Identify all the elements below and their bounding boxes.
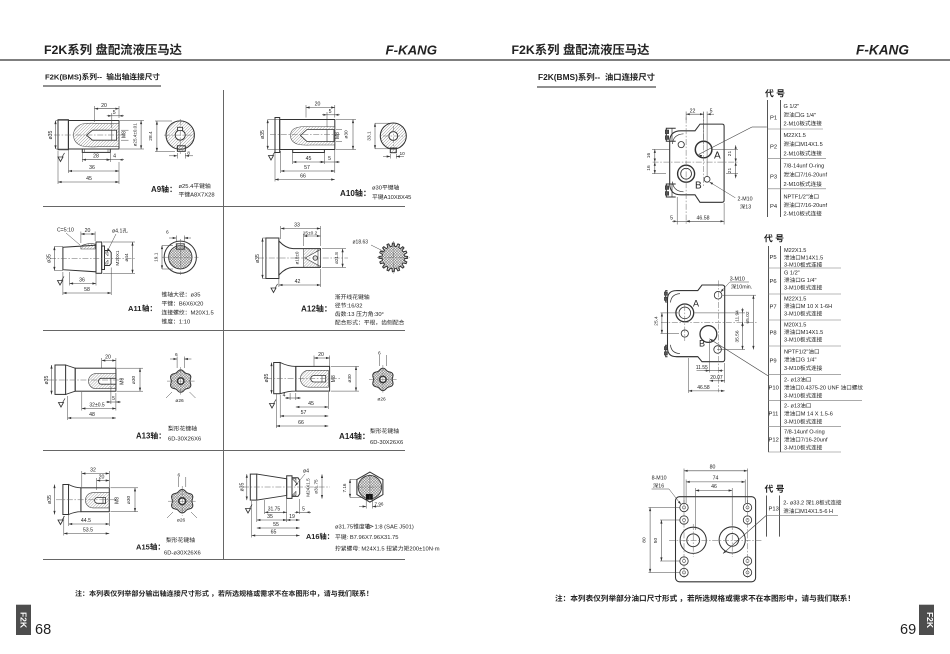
svg-text:F2K: F2K — [512, 43, 535, 57]
svg-text:10min.: 10min. — [736, 285, 752, 291]
svg-text:A16: A16 — [306, 532, 319, 541]
svg-text:65.02: 65.02 — [745, 311, 751, 323]
svg-text:3-M10: 3-M10 — [730, 277, 745, 283]
svg-text:3-M10: 3-M10 — [784, 394, 800, 400]
svg-text:32±0.5: 32±0.5 — [89, 403, 104, 409]
svg-text:M 14 X 1.5-6: M 14 X 1.5-6 — [801, 412, 833, 418]
svg-text:6: 6 — [378, 351, 381, 357]
svg-text:2- ø13: 2- ø13 — [784, 404, 800, 410]
svg-text:B: B — [695, 181, 702, 192]
svg-text:80: 80 — [710, 465, 716, 471]
svg-text:M24X1.5: M24X1.5 — [306, 478, 311, 497]
svg-text:2- ø33.2: 2- ø33.2 — [783, 501, 804, 507]
svg-text:15±0.2: 15±0.2 — [303, 230, 318, 236]
svg-text:19.1: 19.1 — [154, 252, 160, 262]
svg-text:ø30: ø30 — [344, 130, 350, 139]
svg-text:A9: A9 — [151, 185, 162, 194]
svg-text:ø35: ø35 — [191, 293, 201, 299]
svg-text:25.4: 25.4 — [653, 316, 659, 326]
svg-text:ø35: ø35 — [264, 373, 270, 382]
svg-text:G 1/2": G 1/2" — [784, 271, 800, 277]
svg-text:2-M10: 2-M10 — [784, 121, 800, 127]
svg-text:NPTF1/2": NPTF1/2" — [784, 195, 808, 201]
svg-text:M22X1.5: M22X1.5 — [784, 297, 806, 303]
svg-text:M14X1.5-6 H: M14X1.5-6 H — [800, 509, 833, 515]
svg-text:M14X1.5: M14X1.5 — [800, 142, 822, 148]
svg-text:28.4: 28.4 — [148, 131, 154, 141]
svg-text:3-M10: 3-M10 — [784, 312, 800, 318]
svg-text:M20X1: M20X1 — [115, 250, 121, 266]
svg-text:P8: P8 — [770, 331, 777, 337]
svg-text:28: 28 — [93, 154, 99, 160]
svg-text:16: 16 — [658, 484, 664, 490]
svg-text:2-M10: 2-M10 — [784, 212, 800, 218]
svg-text:33: 33 — [294, 223, 300, 229]
svg-text:66: 66 — [300, 174, 306, 180]
svg-text:5: 5 — [329, 109, 332, 115]
svg-text:7/8-14unf O-ring: 7/8-14unf O-ring — [784, 164, 825, 170]
svg-text:3-M10: 3-M10 — [784, 338, 800, 344]
svg-text:ø30: ø30 — [372, 186, 382, 192]
svg-text:M8: M8 — [120, 378, 126, 385]
svg-text:ø26: ø26 — [177, 518, 186, 524]
svg-text:45: 45 — [308, 401, 314, 407]
svg-text:ø18±0: ø18±0 — [295, 251, 300, 264]
svg-text:36: 36 — [79, 278, 85, 284]
svg-text:46: 46 — [711, 484, 717, 490]
svg-text:M8: M8 — [331, 375, 337, 382]
svg-text:P13: P13 — [769, 507, 779, 513]
svg-text:7/8-14unf O-ring: 7/8-14unf O-ring — [784, 430, 825, 436]
svg-text:A14: A14 — [339, 432, 354, 441]
svg-text:ø35: ø35 — [44, 375, 50, 384]
svg-text:ø31.75: ø31.75 — [313, 479, 318, 494]
svg-text:P4: P4 — [770, 204, 778, 210]
svg-text:ø30: ø30 — [347, 374, 353, 383]
svg-text:3-M10: 3-M10 — [784, 263, 800, 269]
svg-text:F2K(BMS): F2K(BMS) — [45, 73, 82, 82]
svg-text:21: 21 — [727, 151, 733, 157]
svg-text:2-M10: 2-M10 — [738, 197, 753, 203]
svg-text:55: 55 — [273, 522, 279, 528]
svg-text:F-KANG: F-KANG — [856, 43, 909, 58]
svg-text:45: 45 — [86, 176, 92, 182]
svg-text:74: 74 — [713, 476, 719, 482]
svg-text:A10X8X45: A10X8X45 — [384, 195, 412, 201]
svg-text:G 1/4": G 1/4" — [800, 113, 816, 119]
svg-text:ø4.1: ø4.1 — [112, 229, 122, 235]
svg-text:53.5: 53.5 — [83, 528, 93, 534]
svg-text:F2K(BMS): F2K(BMS) — [538, 72, 578, 82]
svg-text:16: 16 — [646, 153, 652, 159]
svg-text:ø30: ø30 — [126, 496, 132, 505]
svg-text:--: -- — [595, 72, 601, 82]
svg-text:ø35: ø35 — [48, 130, 54, 139]
svg-text:8: 8 — [187, 151, 190, 157]
svg-text:ø25.4±0.01: ø25.4±0.01 — [132, 123, 137, 147]
svg-text:A10: A10 — [340, 189, 355, 198]
svg-text:57: 57 — [304, 165, 310, 171]
svg-text:19: 19 — [289, 514, 295, 520]
svg-text::16/32: :16/32 — [346, 304, 362, 310]
svg-text:ø30: ø30 — [131, 376, 137, 385]
svg-text:31.75: 31.75 — [268, 506, 281, 512]
svg-text:F2K: F2K — [44, 43, 67, 57]
svg-text:35.56: 35.56 — [734, 330, 740, 342]
svg-text:M8: M8 — [335, 132, 341, 139]
svg-text:ø35: ø35 — [47, 495, 53, 504]
svg-text:7/16-20unf: 7/16-20unf — [800, 173, 827, 179]
svg-text:57: 57 — [301, 410, 307, 416]
svg-text:G 1/4": G 1/4" — [801, 278, 817, 284]
svg-text:200±10N·m: 200±10N·m — [409, 547, 439, 553]
svg-text:P2: P2 — [770, 145, 777, 151]
svg-text:ø44: ø44 — [124, 253, 130, 262]
svg-text:45: 45 — [306, 156, 312, 162]
svg-text:6D-30X26X6: 6D-30X26X6 — [370, 440, 403, 446]
svg-text:M22X1.5: M22X1.5 — [784, 248, 806, 254]
svg-text:22: 22 — [690, 109, 696, 115]
svg-text:6D-ø30X26X6: 6D-ø30X26X6 — [164, 551, 201, 557]
svg-text:P5: P5 — [770, 255, 777, 261]
svg-text:5: 5 — [302, 506, 305, 512]
svg-text:ø25.4: ø25.4 — [179, 184, 195, 190]
svg-text:2-M10: 2-M10 — [784, 151, 800, 157]
svg-text:ø4: ø4 — [303, 469, 309, 475]
svg-text:M22X1.5: M22X1.5 — [784, 133, 806, 139]
svg-text:35: 35 — [267, 514, 273, 520]
svg-text:33.1: 33.1 — [367, 131, 373, 141]
svg-text:P11: P11 — [769, 412, 779, 418]
svg-text:5: 5 — [112, 396, 115, 402]
svg-text:58: 58 — [84, 287, 90, 293]
svg-text:A: A — [693, 299, 699, 309]
svg-text:11.94: 11.94 — [734, 310, 740, 322]
svg-text:A12: A12 — [301, 305, 316, 314]
svg-text:66: 66 — [298, 420, 304, 426]
svg-text:8-M10: 8-M10 — [652, 476, 667, 482]
svg-text:6: 6 — [178, 473, 181, 479]
svg-text:M8: M8 — [121, 131, 127, 138]
svg-text:P7: P7 — [770, 305, 777, 311]
svg-text:ø35: ø35 — [260, 130, 266, 139]
svg-text:G 1/2": G 1/2" — [784, 104, 800, 110]
svg-text:P3: P3 — [770, 175, 777, 181]
svg-text:ø21.8: ø21.8 — [334, 252, 339, 264]
svg-text:7.96: 7.96 — [375, 501, 384, 506]
svg-text:C=5:10: C=5:10 — [57, 228, 74, 234]
svg-text:65: 65 — [271, 530, 277, 536]
svg-text:13: 13 — [745, 205, 751, 211]
svg-text:20: 20 — [101, 103, 107, 109]
svg-text:F-KANG: F-KANG — [386, 43, 438, 58]
svg-text:B: B — [699, 339, 705, 349]
svg-text:0.4375-20 UNF: 0.4375-20 UNF — [801, 386, 840, 392]
svg-text:48: 48 — [89, 412, 95, 418]
svg-text:3-M10: 3-M10 — [784, 446, 800, 452]
svg-text:20: 20 — [105, 355, 111, 361]
svg-text:G 1/4": G 1/4" — [801, 358, 817, 364]
svg-text:ø26: ø26 — [377, 397, 386, 403]
svg-text:ø18.63: ø18.63 — [353, 240, 369, 246]
svg-text:B6X6X20: B6X6X20 — [179, 302, 204, 308]
svg-text:20: 20 — [99, 475, 105, 481]
svg-text::13: :13 — [346, 312, 354, 318]
svg-text:6: 6 — [166, 230, 169, 236]
svg-text:M8: M8 — [115, 497, 121, 504]
svg-text:NPTF1/2": NPTF1/2" — [784, 350, 808, 356]
svg-text:P1: P1 — [770, 116, 777, 122]
svg-text:46.58: 46.58 — [697, 216, 710, 222]
svg-text:7/16-20unf: 7/16-20unf — [801, 438, 828, 444]
svg-text:42: 42 — [295, 279, 301, 285]
svg-text:M 10 X 1-6H: M 10 X 1-6H — [801, 304, 832, 310]
svg-text:68: 68 — [35, 622, 51, 638]
svg-text:20: 20 — [85, 228, 91, 234]
svg-text:A11: A11 — [128, 304, 141, 313]
svg-text:20: 20 — [318, 352, 324, 358]
svg-text:M14X1.5: M14X1.5 — [801, 256, 823, 262]
svg-text:P9: P9 — [770, 359, 777, 365]
svg-text:1:10: 1:10 — [179, 320, 190, 326]
svg-text:2-M10: 2-M10 — [784, 182, 800, 188]
svg-text:44.5: 44.5 — [81, 518, 91, 524]
svg-text:50: 50 — [653, 538, 659, 544]
svg-text:P10: P10 — [769, 386, 779, 392]
svg-text:4: 4 — [113, 154, 116, 160]
svg-text:7/16-20unf: 7/16-20unf — [800, 203, 827, 209]
svg-text:46.58: 46.58 — [697, 385, 710, 391]
svg-text:7.16: 7.16 — [342, 483, 347, 492]
svg-text:5: 5 — [710, 109, 713, 115]
svg-text:3-M10: 3-M10 — [784, 286, 800, 292]
svg-text:1:8 (SAE J501): 1:8 (SAE J501) — [375, 525, 414, 531]
svg-text:: B7.96X7.96X31.75: : B7.96X7.96X31.75 — [347, 535, 399, 541]
svg-text:10: 10 — [400, 151, 406, 157]
svg-text:80: 80 — [642, 537, 648, 543]
svg-text:ø35: ø35 — [255, 254, 261, 263]
svg-text:3-M10: 3-M10 — [784, 420, 800, 426]
svg-text:20.07: 20.07 — [710, 375, 723, 381]
svg-text:4: 4 — [283, 393, 286, 399]
svg-text:32: 32 — [90, 468, 96, 474]
svg-text:21: 21 — [727, 168, 733, 174]
svg-text:P6: P6 — [770, 279, 777, 285]
svg-text:20: 20 — [315, 102, 321, 108]
svg-text:3-M10: 3-M10 — [784, 366, 800, 372]
svg-text:: M24X1.5: : M24X1.5 — [358, 547, 384, 553]
svg-text:M20X1.5: M20X1.5 — [784, 323, 806, 329]
svg-text:A: A — [714, 151, 721, 162]
svg-text:16: 16 — [646, 165, 652, 171]
svg-text:5: 5 — [113, 110, 116, 116]
svg-text:A13: A13 — [136, 432, 151, 441]
svg-text:A8X7X28: A8X7X28 — [190, 193, 215, 199]
svg-text:A15: A15 — [136, 543, 150, 552]
svg-text:P12: P12 — [769, 438, 779, 444]
svg-text:6: 6 — [175, 352, 178, 358]
svg-text:ø35: ø35 — [239, 482, 245, 491]
svg-text:ø31.75: ø31.75 — [335, 525, 353, 531]
svg-text:11.55: 11.55 — [696, 365, 708, 371]
svg-text:5: 5 — [328, 156, 331, 162]
svg-text:ø35: ø35 — [47, 254, 53, 263]
svg-text:M14X1.5: M14X1.5 — [801, 330, 823, 336]
svg-text:ø26: ø26 — [175, 398, 184, 404]
svg-text:1.8: 1.8 — [811, 501, 819, 507]
svg-text:M20X1.5: M20X1.5 — [191, 311, 214, 317]
svg-text:6D-30X26X6: 6D-30X26X6 — [168, 437, 201, 443]
svg-text:69: 69 — [900, 622, 916, 638]
svg-text:5: 5 — [670, 216, 673, 222]
svg-text::30°: :30° — [374, 312, 384, 318]
svg-text:F2K: F2K — [19, 612, 29, 629]
svg-text:2- ø13: 2- ø13 — [784, 378, 800, 384]
svg-text:F2K: F2K — [925, 612, 935, 629]
svg-text:36: 36 — [89, 165, 95, 171]
svg-text:--: -- — [97, 73, 103, 82]
